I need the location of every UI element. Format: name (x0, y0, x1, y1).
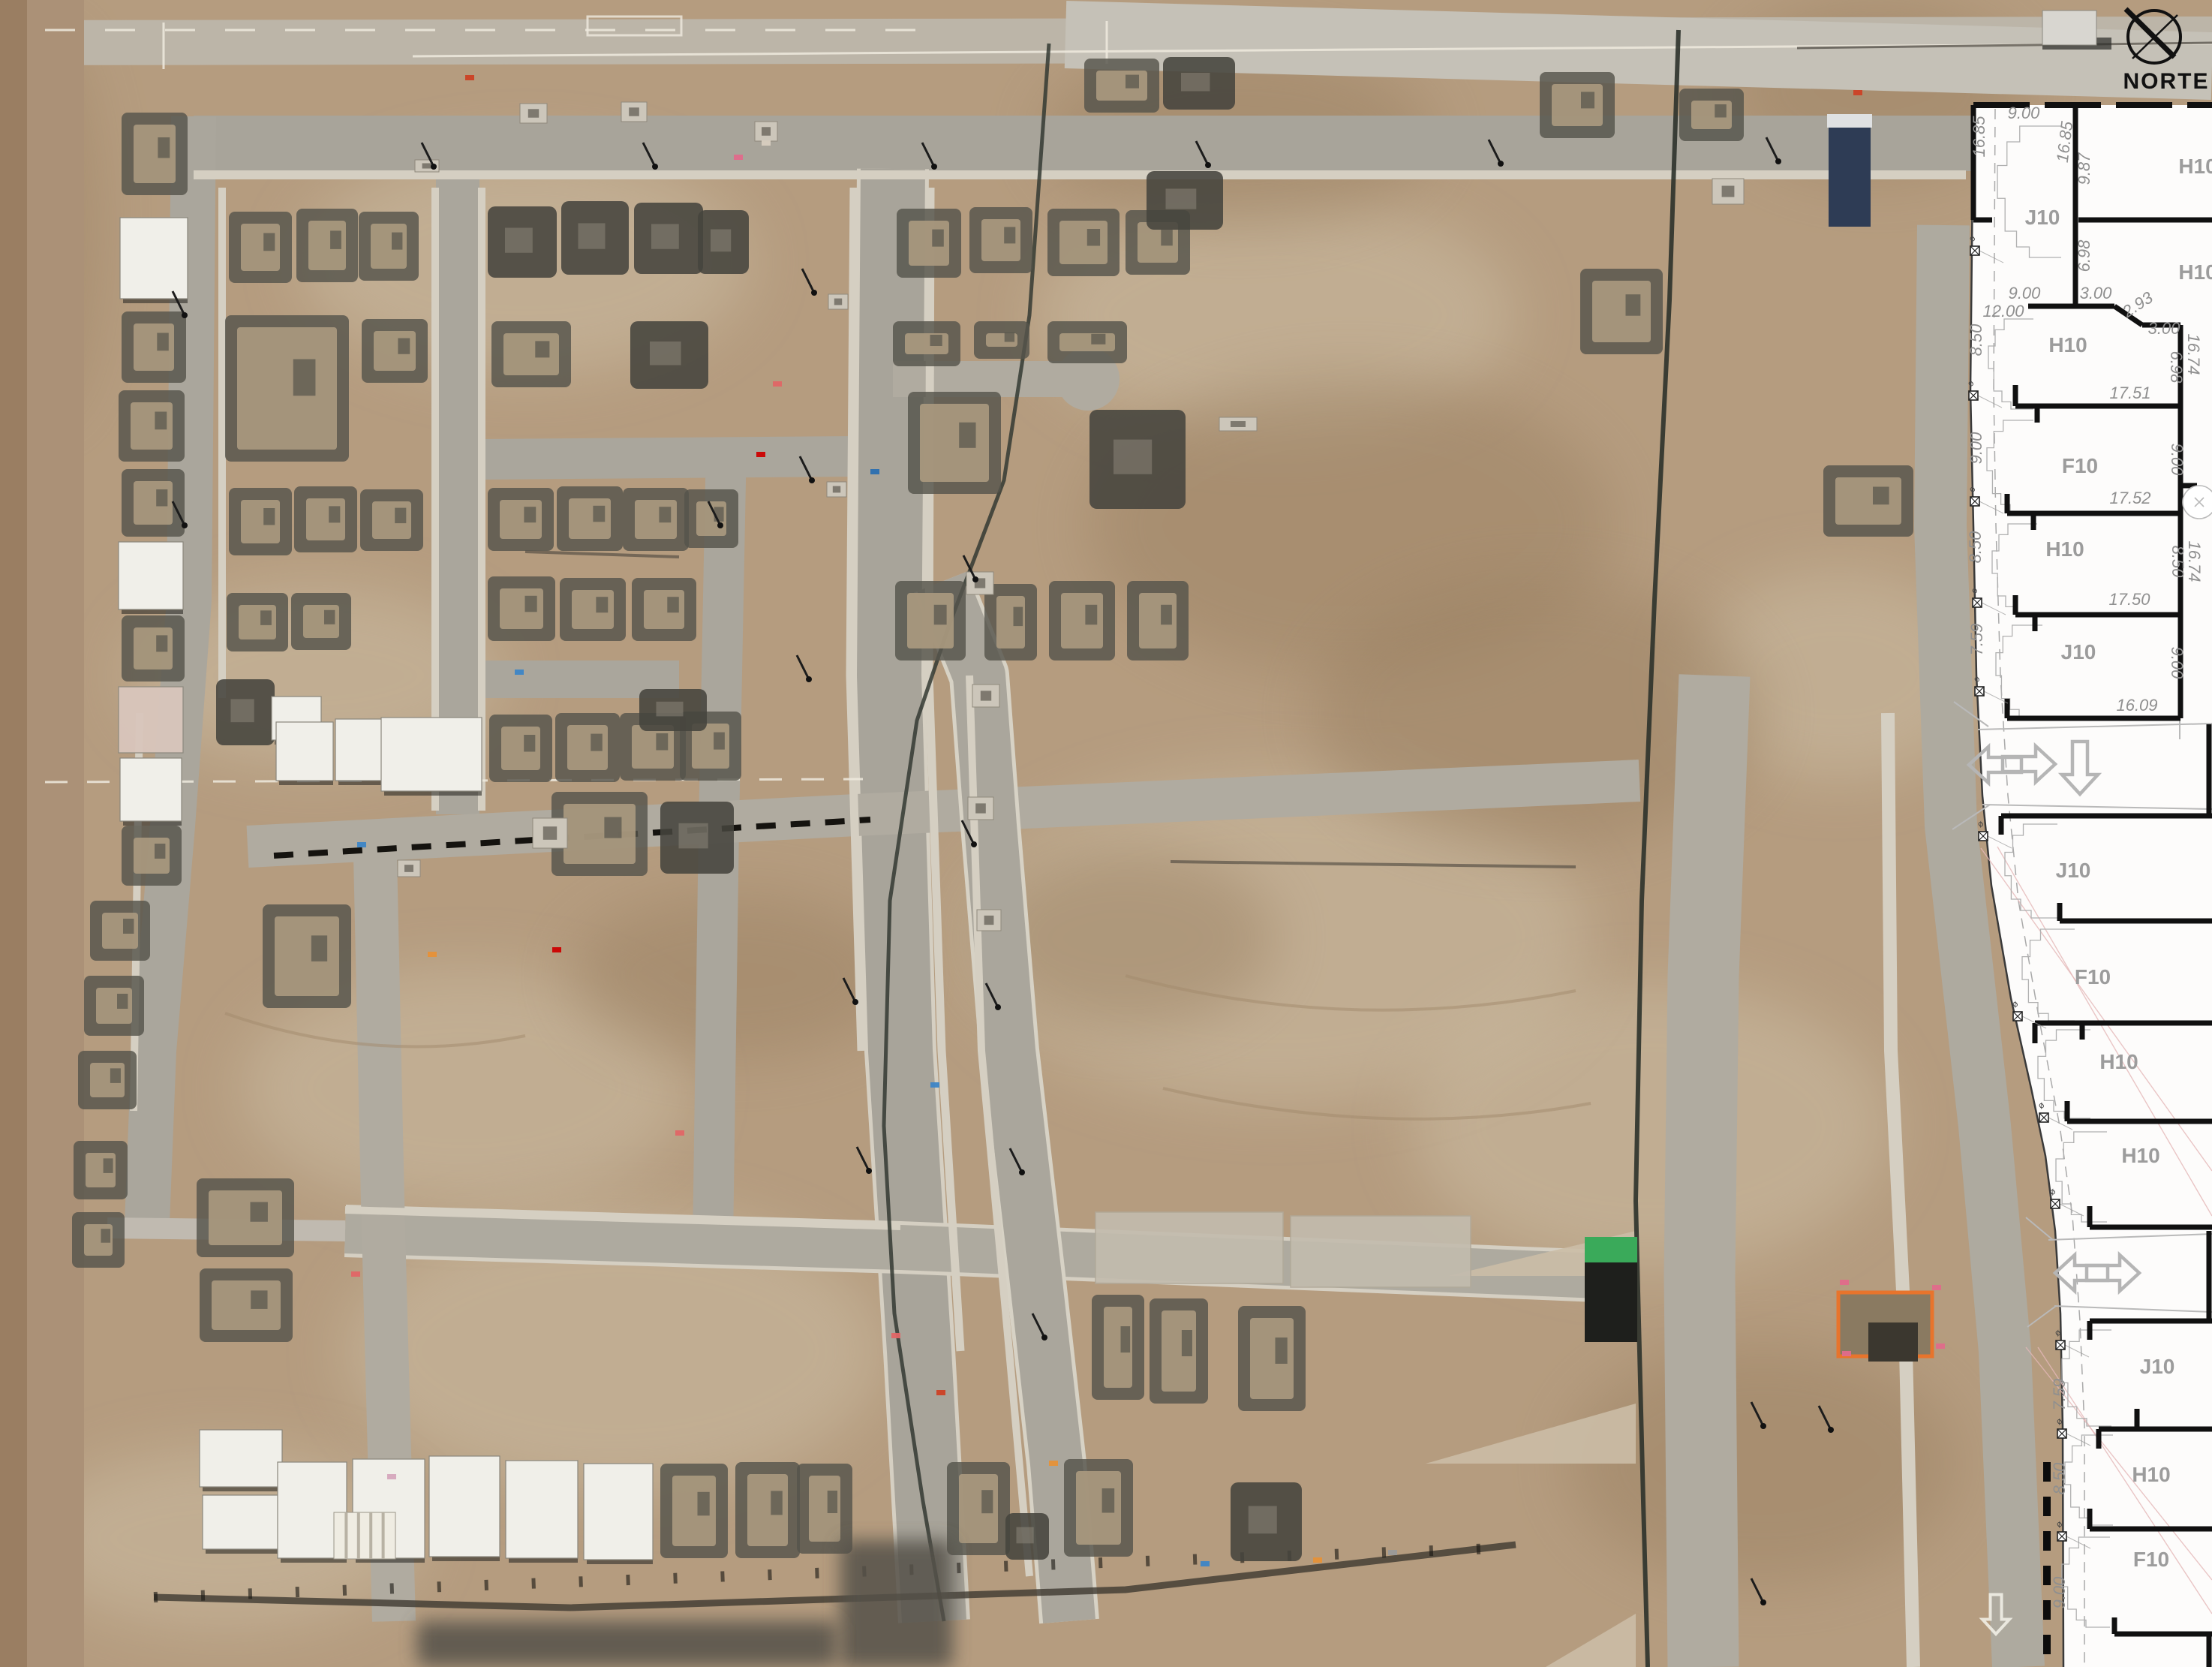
equipment-speck (387, 1474, 396, 1479)
foundation-excavation (200, 1268, 293, 1342)
manhole-symbol (2183, 486, 2212, 519)
foundation-excavation (122, 615, 185, 682)
utility-pad (966, 572, 993, 594)
foundation-excavation (122, 113, 188, 195)
equipment-speck (773, 381, 782, 387)
orange-fenced-pit (1838, 1292, 1932, 1362)
foundation-excavation (122, 469, 185, 537)
dimension-text: 17.51 (2109, 384, 2150, 402)
foundation-excavation (1047, 321, 1127, 363)
foundation-excavation (660, 1464, 728, 1558)
foundation-excavation (1092, 1295, 1144, 1400)
lot-label: J10 (2140, 1355, 2175, 1378)
foundation-excavation (684, 489, 738, 548)
lot-label: F10 (2133, 1548, 2169, 1571)
lot-label: J10 (2061, 640, 2096, 663)
dimension-text: 9.00 (2168, 444, 2186, 477)
foundation-excavation (639, 689, 707, 731)
equipment-speck (756, 452, 765, 457)
foundation-excavation (489, 715, 552, 782)
utility-pad (968, 797, 993, 820)
foundation-excavation (560, 578, 626, 641)
utility-pad (755, 122, 777, 141)
foundation-excavation (1163, 57, 1235, 110)
orthophoto-site-sheet: øøøøøøøøøøøøJ10H10H10H10F10H10J10J10F10H… (0, 0, 2212, 1667)
pink-slab (119, 687, 183, 753)
equipment-speck (1388, 1550, 1397, 1555)
foundation-excavation (947, 1462, 1010, 1555)
foundation-excavation (488, 488, 554, 551)
dimension-text: 8.50 (1967, 323, 1985, 357)
utility-pad (1219, 417, 1257, 431)
foundation-excavation (294, 486, 357, 552)
foundation-excavation (488, 576, 555, 641)
foundation-excavation (974, 321, 1029, 359)
lot-label: H10 (2048, 333, 2087, 357)
dimension-text: 16.74 (2184, 333, 2203, 375)
dimension-text: 3.00 (2080, 284, 2113, 302)
lot-label: F10 (2075, 965, 2111, 988)
foundation-excavation (1005, 1513, 1049, 1560)
foundation-excavation (225, 315, 349, 462)
equipment-speck (1842, 1351, 1851, 1356)
road (1700, 676, 1715, 1667)
foundation-excavation (1540, 72, 1615, 138)
foundation-excavation (197, 1178, 294, 1257)
lot-label: F10 (2062, 454, 2098, 477)
foundation-excavation (78, 1051, 137, 1109)
lot-label: H10 (2178, 155, 2212, 178)
dimension-text: 6.98 (2167, 351, 2186, 384)
foundation-excavation (1823, 465, 1913, 537)
foundation-excavation (1580, 269, 1663, 354)
dimension-text: 7.59 (1967, 624, 1986, 656)
rubble-area (417, 1621, 837, 1666)
dimension-text: 9.00 (1967, 432, 1985, 465)
foundation-excavation (296, 209, 358, 282)
dimension-text: 12.00 (1982, 302, 2024, 320)
dimension-text: 17.50 (2108, 590, 2150, 609)
foundation-excavation (229, 212, 292, 283)
foundation-excavation (90, 901, 150, 961)
dimension-text: 9.00 (2050, 1576, 2069, 1609)
utility-pad (520, 104, 547, 123)
equipment-speck (1840, 1280, 1849, 1285)
white-slab (120, 758, 182, 826)
equipment-speck (891, 1333, 900, 1338)
white-slab (381, 718, 482, 796)
dimension-text: 16.74 (2185, 540, 2204, 582)
white-slab (120, 218, 188, 303)
foundation-excavation (893, 321, 960, 366)
equipment-speck (351, 1271, 360, 1277)
foundation-excavation (1238, 1306, 1306, 1411)
blue-roofed-building (1827, 114, 1872, 227)
equipment-speck (675, 1130, 684, 1136)
foundation-excavation (634, 203, 703, 274)
utility-pad (827, 482, 846, 497)
foundation-excavation (216, 679, 275, 745)
dimension-text: 9.00 (2008, 104, 2041, 122)
foundation-excavation (488, 206, 557, 278)
equipment-speck (515, 670, 524, 675)
dimension-text: 9.00 (2168, 647, 2186, 680)
foundation-excavation (632, 578, 696, 641)
utility-pad (977, 910, 1001, 931)
lot-label: H10 (2178, 260, 2212, 284)
equipment-speck (870, 469, 879, 474)
dimension-text: 9.87 (2075, 152, 2093, 185)
foundation-excavation (84, 976, 144, 1036)
foundation-excavation (122, 311, 186, 383)
lot-label: H10 (2132, 1463, 2170, 1486)
foundation-excavation (555, 713, 620, 782)
dimension-text: 8.50 (2050, 1462, 2069, 1495)
dimension-text: 6.98 (2075, 239, 2093, 272)
equipment-speck (734, 155, 743, 160)
foundation-excavation (227, 593, 288, 651)
foundation-excavation (122, 826, 182, 886)
equipment-speck (1049, 1461, 1058, 1466)
foundation-excavation (735, 1462, 800, 1558)
white-slab (276, 722, 333, 785)
equipment-speck (552, 947, 561, 952)
rubble-area (840, 1540, 953, 1667)
foundation-excavation (557, 486, 623, 551)
foundation-excavation (491, 321, 571, 387)
white-slab (119, 542, 183, 614)
foundation-excavation (362, 319, 428, 383)
white-slab (200, 1430, 282, 1491)
equipment-speck (762, 140, 771, 146)
utility-pad (828, 294, 848, 309)
equipment-speck (936, 1390, 945, 1395)
foundation-excavation (263, 904, 351, 1008)
white-slab (203, 1495, 281, 1554)
dimension-text: 7.59 (2050, 1379, 2069, 1411)
foundation-excavation (660, 802, 734, 874)
scene-svg: øøøøøøøøøøøøJ10H10H10H10F10H10J10J10F10H… (0, 0, 2212, 1667)
white-slab (506, 1461, 578, 1563)
foundation-excavation (908, 392, 1001, 494)
equipment-speck (428, 952, 437, 957)
foundation-excavation (1679, 89, 1744, 141)
utility-pad (398, 860, 420, 877)
foundation-excavation (1231, 1482, 1302, 1561)
equipment-speck (1853, 90, 1862, 95)
foundation-excavation (969, 207, 1032, 273)
equipment-speck (1936, 1344, 1945, 1349)
dimension-text: 16.85 (1970, 116, 1988, 158)
dimension-text: 17.52 (2109, 489, 2150, 507)
lot-label: H10 (2099, 1050, 2138, 1073)
foundation-excavation (1150, 1298, 1208, 1404)
foundation-excavation (1064, 1459, 1133, 1557)
equipment-speck (1313, 1557, 1322, 1563)
dimension-text: 16.09 (2116, 696, 2157, 715)
lot-label: H10 (2121, 1144, 2159, 1167)
lot-label: J10 (2025, 206, 2060, 229)
foundation-excavation (72, 1212, 125, 1268)
dimension-text: 9.00 (2009, 284, 2042, 302)
green-roofed-shed (1585, 1237, 1637, 1342)
foundation-excavation (74, 1141, 128, 1199)
equipment-speck (1201, 1561, 1210, 1566)
foundation-excavation (291, 593, 351, 650)
foundation-excavation (895, 581, 966, 660)
lot-label: J10 (2056, 859, 2091, 882)
aerial-photo-layer (0, 0, 2212, 1667)
foundation-excavation (1084, 59, 1159, 113)
white-slab (429, 1456, 500, 1561)
lot-label: H10 (2045, 537, 2084, 561)
utility-pad (1712, 179, 1744, 204)
foundation-excavation (630, 321, 708, 389)
dimension-text: 3.00 (2148, 319, 2181, 338)
foundation-excavation (623, 488, 689, 551)
foundation-excavation (984, 584, 1037, 660)
foundation-excavation (359, 212, 419, 281)
foundation-excavation (897, 209, 961, 278)
foundation-excavation (229, 488, 292, 555)
equipment-speck (465, 75, 474, 80)
foundation-excavation (1049, 581, 1115, 660)
utility-pad (533, 818, 567, 848)
graded-pad (1095, 1212, 1283, 1283)
foundation-excavation (1047, 209, 1120, 276)
foundation-excavation (119, 390, 185, 462)
foundation-excavation (1089, 410, 1186, 509)
dimension-text: 8.50 (2168, 546, 2187, 579)
equipment-speck (357, 842, 366, 847)
utility-pad (621, 102, 647, 122)
graded-pad (1291, 1216, 1471, 1287)
white-slab (584, 1464, 653, 1564)
north-label: NORTE (2123, 69, 2210, 94)
foundation-excavation (1147, 171, 1223, 230)
foundation-excavation (561, 201, 629, 275)
equipment-speck (1932, 1285, 1941, 1290)
foundation-excavation (360, 489, 423, 551)
utility-pad (972, 685, 999, 707)
equipment-speck (930, 1082, 939, 1088)
striped-canopy (334, 1512, 395, 1559)
foundation-excavation (698, 210, 749, 274)
foundation-excavation (1127, 581, 1189, 660)
foundation-excavation (797, 1464, 852, 1554)
dimension-text: 8.50 (1966, 531, 1985, 564)
